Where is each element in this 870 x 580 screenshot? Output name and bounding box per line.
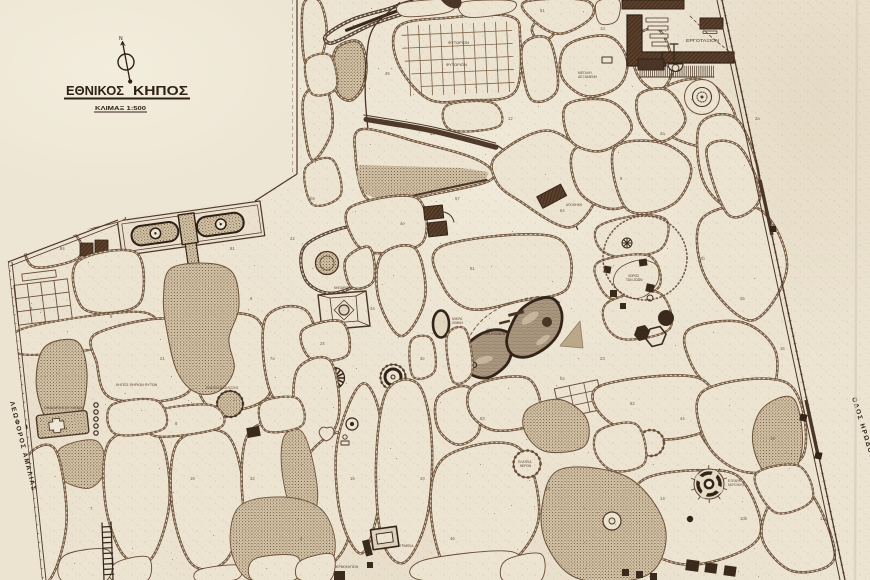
- svg-text:62: 62: [630, 401, 635, 406]
- svg-text:44: 44: [680, 416, 685, 421]
- svg-text:25: 25: [740, 296, 745, 301]
- svg-text:81: 81: [230, 246, 235, 251]
- svg-text:46: 46: [450, 536, 455, 541]
- svg-text:57: 57: [455, 196, 460, 201]
- svg-text:45: 45: [385, 71, 390, 76]
- svg-text:84: 84: [60, 246, 65, 251]
- svg-text:16: 16: [350, 476, 355, 481]
- svg-text:61: 61: [470, 266, 475, 271]
- svg-text:7a: 7a: [270, 356, 275, 361]
- svg-text:32: 32: [250, 476, 255, 481]
- svg-text:12: 12: [508, 116, 513, 121]
- svg-text:13: 13: [600, 26, 605, 31]
- svg-text:21: 21: [160, 356, 165, 361]
- svg-text:34: 34: [370, 306, 375, 311]
- svg-text:24: 24: [320, 341, 325, 346]
- svg-text:2a: 2a: [660, 131, 665, 136]
- svg-text:ΚΗΠΟΣ: ΚΗΠΟΣ: [133, 83, 188, 98]
- svg-text:48: 48: [545, 486, 550, 491]
- svg-text:3a: 3a: [755, 116, 760, 121]
- svg-text:23: 23: [600, 356, 605, 361]
- svg-text:49: 49: [430, 131, 435, 136]
- svg-text:64: 64: [560, 208, 565, 213]
- svg-text:83: 83: [480, 416, 485, 421]
- svg-text:41: 41: [352, 24, 357, 29]
- svg-text:3e: 3e: [420, 356, 425, 361]
- svg-text:ΚΛΙΜΑΞ 1:500: ΚΛΙΜΑΞ 1:500: [95, 106, 146, 112]
- svg-text:43: 43: [420, 476, 425, 481]
- svg-text:h8: h8: [310, 196, 315, 201]
- svg-text:4e: 4e: [400, 221, 405, 226]
- svg-text:ΕΘΝΙΚΟΣ: ΕΘΝΙΚΟΣ: [66, 83, 124, 98]
- svg-text:h2: h2: [560, 376, 565, 381]
- svg-text:N: N: [119, 36, 123, 42]
- svg-text:11: 11: [820, 516, 825, 521]
- svg-text:10b: 10b: [740, 516, 748, 521]
- svg-text:18: 18: [190, 476, 195, 481]
- svg-text:51: 51: [540, 8, 545, 13]
- svg-text:15: 15: [780, 346, 785, 351]
- svg-text:19: 19: [770, 436, 775, 441]
- svg-text:22: 22: [290, 236, 295, 241]
- svg-text:14: 14: [660, 496, 665, 501]
- svg-text:2b: 2b: [700, 256, 705, 261]
